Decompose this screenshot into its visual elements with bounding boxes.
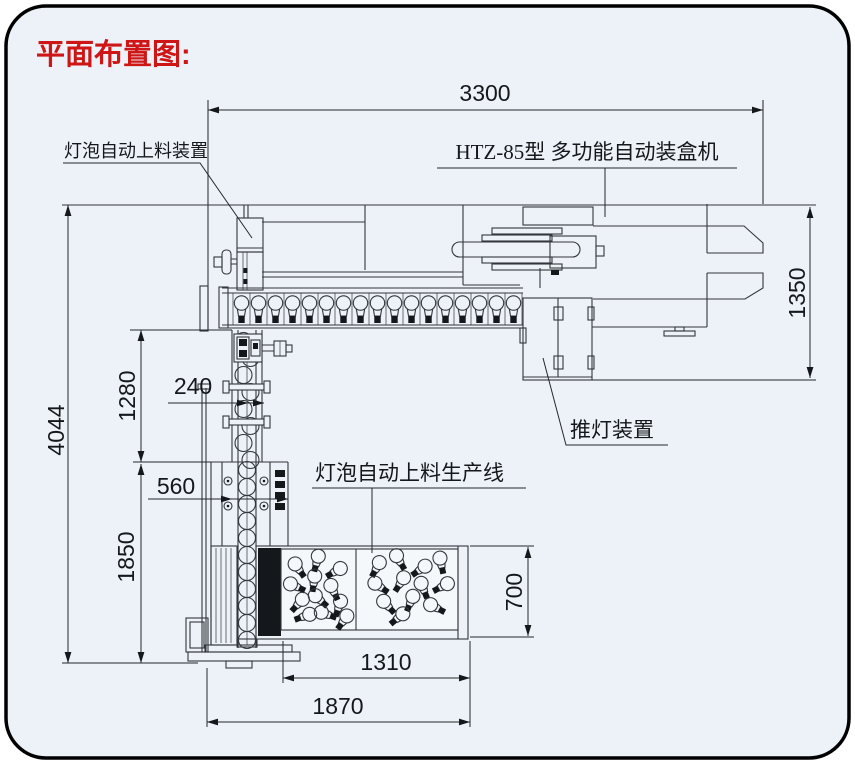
label-feeding-line: 灯泡自动上料生产线 [315,461,504,485]
dim-base-width: 1870 [312,693,363,719]
page-title: 平面布置图: [36,38,191,71]
label-boxing-machine: HTZ-85型 多功能自动装盒机 [455,140,718,164]
dim-lower-section-width: 560 [157,473,195,499]
floor-plan-drawing: 平面布置图: [0,0,855,764]
dim-machine-length: 3300 [459,80,510,106]
dark-block [258,548,281,636]
bulb-supply-box [256,546,468,639]
dim-conveyor-width: 240 [174,373,212,399]
dim-bulb-box-width: 1310 [360,649,411,675]
label-lamp-pusher: 推灯装置 [570,418,654,442]
dim-total-depth: 4044 [43,404,69,455]
label-bulb-feeder: 灯泡自动上料装置 [64,141,208,161]
dim-machine-depth: 1350 [784,267,810,318]
floor-plan-page: 平面布置图: [0,0,855,764]
dim-bulb-box-depth: 700 [501,573,527,611]
dim-lower-section-height: 1850 [113,531,139,582]
dim-conveyor-section-height: 1280 [114,370,140,421]
